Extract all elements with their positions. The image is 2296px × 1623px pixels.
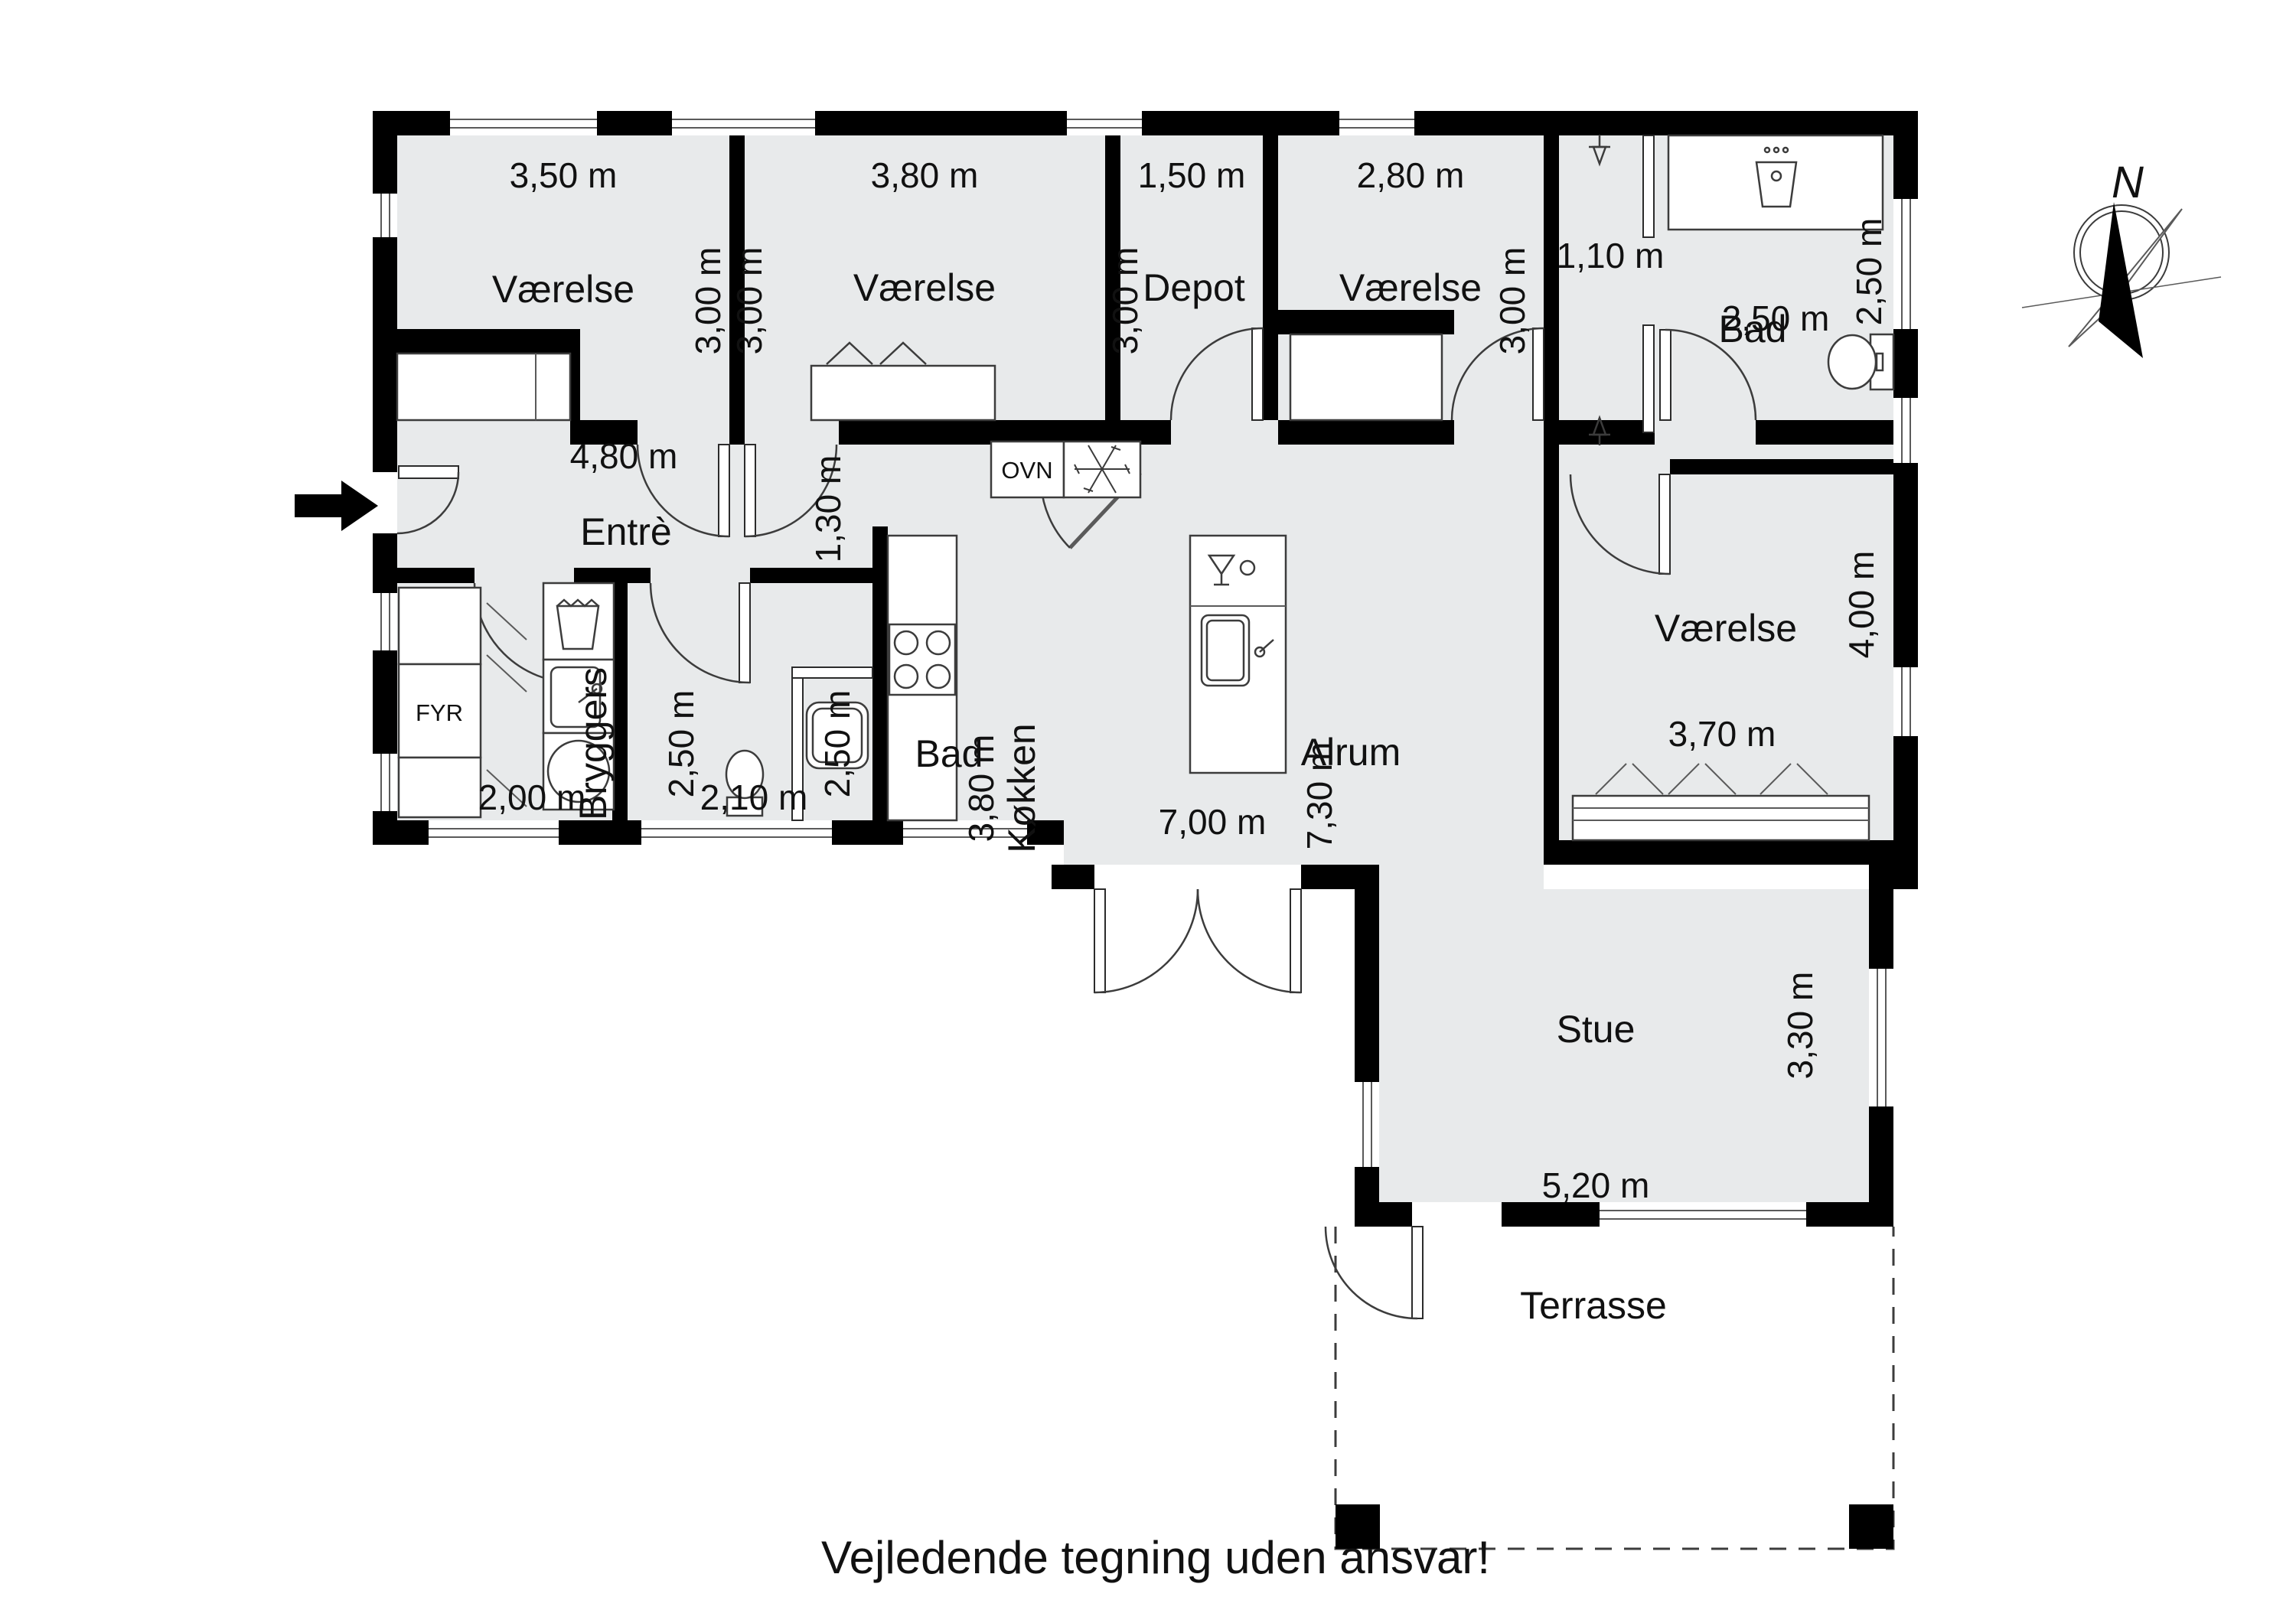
shower-top-partition-2 (1643, 325, 1654, 432)
room-label-terrasse: Terrasse (1520, 1284, 1667, 1327)
window-top-v3 (1339, 111, 1414, 135)
wall-vaerelse4-top (1670, 459, 1893, 474)
window-top-v1 (450, 111, 597, 135)
room-label-vaerelse4: Værelse (1655, 607, 1797, 650)
room-label-koekken: Køkken (1000, 723, 1043, 853)
room-label-vaerelse3: Værelse (1339, 266, 1482, 309)
wall-entre-a (373, 568, 475, 583)
window-bottom-bad (641, 820, 832, 845)
terrace-post-right (1849, 1504, 1893, 1549)
wall-ext-top (373, 111, 1918, 135)
dim-vaerelse4-w: 3,70 m (1668, 714, 1776, 754)
dim-stue-w: 5,20 m (1542, 1165, 1650, 1205)
washing-machine-icon (543, 583, 614, 660)
window-stue-right (1869, 969, 1893, 1106)
kitchen-island (1190, 536, 1286, 773)
kitchen-counter (888, 536, 957, 820)
compass-rose: N (2022, 158, 2221, 358)
dim-depot-w: 1,50 m (1138, 155, 1246, 195)
dim-vaerelse4-h: 4,00 m (1841, 551, 1881, 659)
dim-bad-top-h: 2,50 m (1849, 218, 1889, 326)
compass-north-label: N (2112, 158, 2144, 207)
wall-entre-c (750, 568, 872, 583)
dim-bad-top-niche: 1,10 m (1557, 236, 1665, 275)
wall-mid-c (1278, 420, 1454, 445)
terrace-door (1326, 1227, 1423, 1318)
wall-wardrobe-bottom (1559, 840, 1918, 865)
dim-vaerelse1-h: 3,00 m (688, 247, 728, 355)
dim-vaerelse2-w: 3,80 m (871, 155, 979, 195)
dim-hall-w: 1,30 m (808, 455, 848, 563)
wall-p3 (1263, 135, 1278, 420)
floorplan-canvas: OVN FYR (0, 0, 2296, 1623)
compass-needle-black (2099, 202, 2143, 358)
dim-stue-h: 3,30 m (1780, 972, 1820, 1080)
furnace-label: FYR (416, 699, 463, 726)
room-label-vaerelse1: Værelse (492, 268, 634, 311)
terrace-door-opening (1412, 1202, 1502, 1227)
oven-label: OVN (1001, 457, 1052, 484)
fan-icon (1064, 442, 1140, 497)
dim-koekken-h: 3,80 m (961, 735, 1001, 842)
bad-mid-partition-h (792, 667, 872, 678)
dim-alrum-h: 7,30 m (1300, 742, 1339, 850)
window-bottom-bryggers (429, 820, 559, 845)
dim-vaerelse1-w: 3,50 m (510, 155, 618, 195)
room-label-entre: Entrè (580, 510, 672, 553)
dim-alrum-w: 7,00 m (1159, 802, 1267, 842)
dim-bryggers-h: 2,50 m (661, 690, 701, 798)
window-right-vaerelse4 (1893, 667, 1918, 736)
dim-bad-top-w: 2,50 m (1722, 298, 1830, 338)
window-left-bryggers-1 (373, 593, 397, 650)
dim-vaerelse3-h: 3,00 m (1492, 247, 1532, 355)
window-right-bad-top (1893, 199, 1918, 329)
window-left-v1 (373, 194, 397, 237)
wall-v3-closet-stub (1278, 310, 1454, 334)
wall-v1-closet-return (570, 354, 580, 420)
dim-entre-w: 4,80 m (570, 436, 678, 476)
window-stue-bottom (1600, 1202, 1806, 1227)
entry-arrow-icon (295, 481, 378, 531)
disclaimer-text: Vejledende tegning uden ansvar! (821, 1532, 1490, 1583)
wall-mid-d (1559, 420, 1655, 445)
dim-vaerelse2-h: 3,00 m (729, 247, 769, 355)
dim-vaerelse3-w: 2,80 m (1357, 155, 1465, 195)
closet-vaerelse3 (1290, 334, 1442, 420)
window-right-hall (1893, 398, 1918, 463)
shower-top-partition-1 (1643, 135, 1654, 237)
wall-v1-closet-stub (373, 329, 580, 354)
oven-cabinet: OVN (991, 442, 1064, 497)
dim-depot-h: 3,00 m (1105, 247, 1145, 355)
window-stue-left (1355, 1082, 1379, 1167)
dim-bad-mid-h: 2,50 m (817, 690, 857, 798)
entry-door-opening (373, 472, 397, 533)
room-label-stue: Stue (1557, 1008, 1636, 1051)
window-top-v2 (672, 111, 815, 135)
closet-vaerelse1 (397, 354, 570, 420)
french-door-opening (1094, 865, 1301, 889)
toilet-top-icon (1828, 334, 1893, 389)
dim-bad-mid-w: 2,10 m (700, 777, 808, 817)
window-top-depot (1067, 111, 1142, 135)
wall-mid-e (1756, 420, 1893, 445)
room-label-depot: Depot (1143, 266, 1245, 309)
wall-p6 (872, 526, 888, 820)
dim-bryggers-w: 2,00 m (478, 777, 586, 817)
room-label-vaerelse2: Værelse (853, 266, 996, 309)
wall-stue-left (1355, 865, 1379, 1227)
french-doors (1094, 889, 1301, 992)
window-left-bryggers-2 (373, 754, 397, 811)
vanity-top-icon (1668, 135, 1883, 230)
